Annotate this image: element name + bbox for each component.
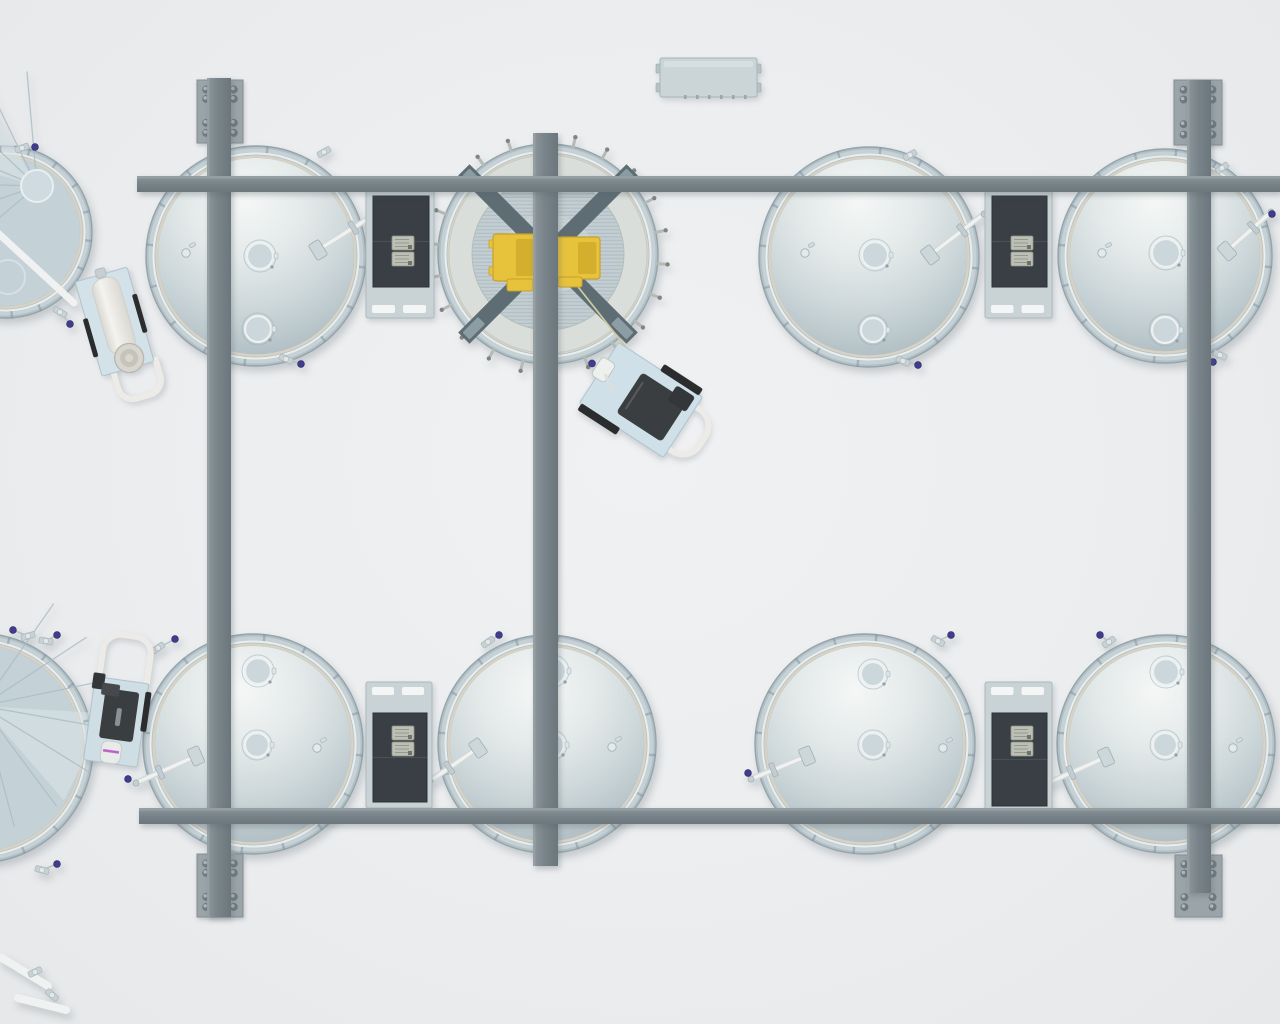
valve-fitting [1097,632,1117,649]
valve-fitting [316,146,331,158]
beam-v-right [1187,80,1211,893]
valve-knob [54,861,61,868]
cone-apex-port [21,170,53,202]
valve-knob [1269,211,1276,218]
valve-knob [745,770,752,777]
valve-knob [948,632,955,639]
valve-fitting [52,306,73,327]
panel-keypad [1011,726,1033,740]
panel-keypad [1011,252,1033,266]
valve-knob [125,776,132,783]
valve-knob [54,632,61,639]
control-panel-bottom-right [985,682,1052,812]
plant-layout-render [0,0,1280,1024]
valve-knob [10,627,17,634]
beam-h-bottom [139,808,1280,824]
tank-bottom-far-left [0,604,107,1010]
valve-knob [32,144,39,151]
valve-fitting [34,861,60,875]
beam-v-center [533,133,558,866]
panel-slot [372,305,395,313]
valve-knob [1097,632,1104,639]
panel-keypad [1011,236,1033,250]
scene-canvas [0,0,1280,1024]
control-panel-top-left [366,190,434,318]
valve-knob [496,632,503,639]
panel-keypad [392,236,414,250]
valve-knob [67,321,74,328]
beam-h-top [137,176,1280,192]
valve-knob [298,361,305,368]
valve-fitting [45,988,60,1002]
panel-keypad [392,742,414,756]
valve-fitting [151,636,179,655]
valve-fitting [930,632,954,647]
control-panel-top-right [985,190,1052,318]
control-panel-bottom-left [366,682,432,808]
panel-slot [403,305,426,313]
beam-v-left [207,78,231,917]
valve-knob [172,636,179,643]
panel-slot [991,305,1014,313]
panel-keypad [392,252,414,266]
panel-slot [372,687,394,695]
panel-slot [1022,687,1045,695]
panel-slot [402,687,424,695]
panel-slot [991,687,1014,695]
panel-keypad [1011,742,1033,756]
cart-handle [99,632,153,683]
valve-knob [915,362,922,369]
panel-keypad [392,726,414,740]
valve-fitting [39,632,61,646]
panel-slot [1022,305,1045,313]
junction-box [656,58,761,99]
hose-pipe [18,998,66,1010]
